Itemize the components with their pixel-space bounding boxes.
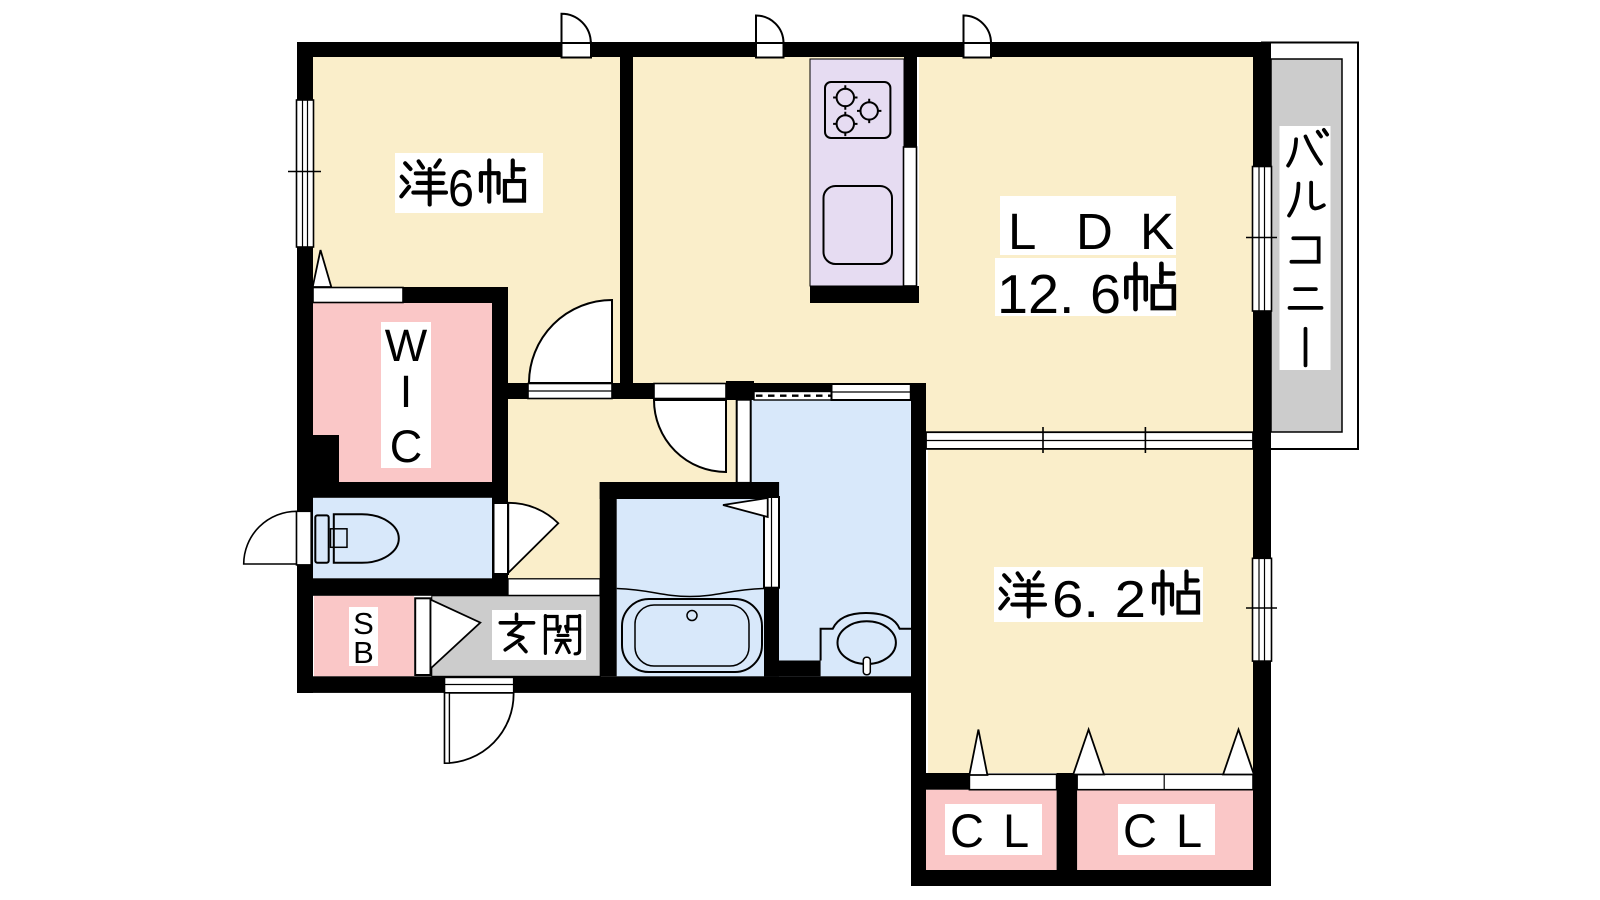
svg-text:L: L	[1003, 804, 1029, 857]
svg-text:K: K	[1140, 203, 1174, 260]
svg-text:I: I	[400, 366, 413, 417]
svg-text:L: L	[1008, 203, 1036, 260]
svg-text:D: D	[1076, 203, 1113, 260]
svg-text:C: C	[950, 804, 984, 857]
svg-text:L: L	[1176, 804, 1202, 857]
svg-text:W: W	[385, 320, 428, 371]
svg-text:6: 6	[448, 160, 474, 218]
svg-text:6. 2: 6. 2	[1052, 571, 1146, 629]
svg-text:12. 6: 12. 6	[997, 263, 1121, 325]
svg-text:B: B	[353, 635, 374, 670]
svg-text:C: C	[1123, 804, 1157, 857]
svg-text:C: C	[390, 421, 423, 472]
